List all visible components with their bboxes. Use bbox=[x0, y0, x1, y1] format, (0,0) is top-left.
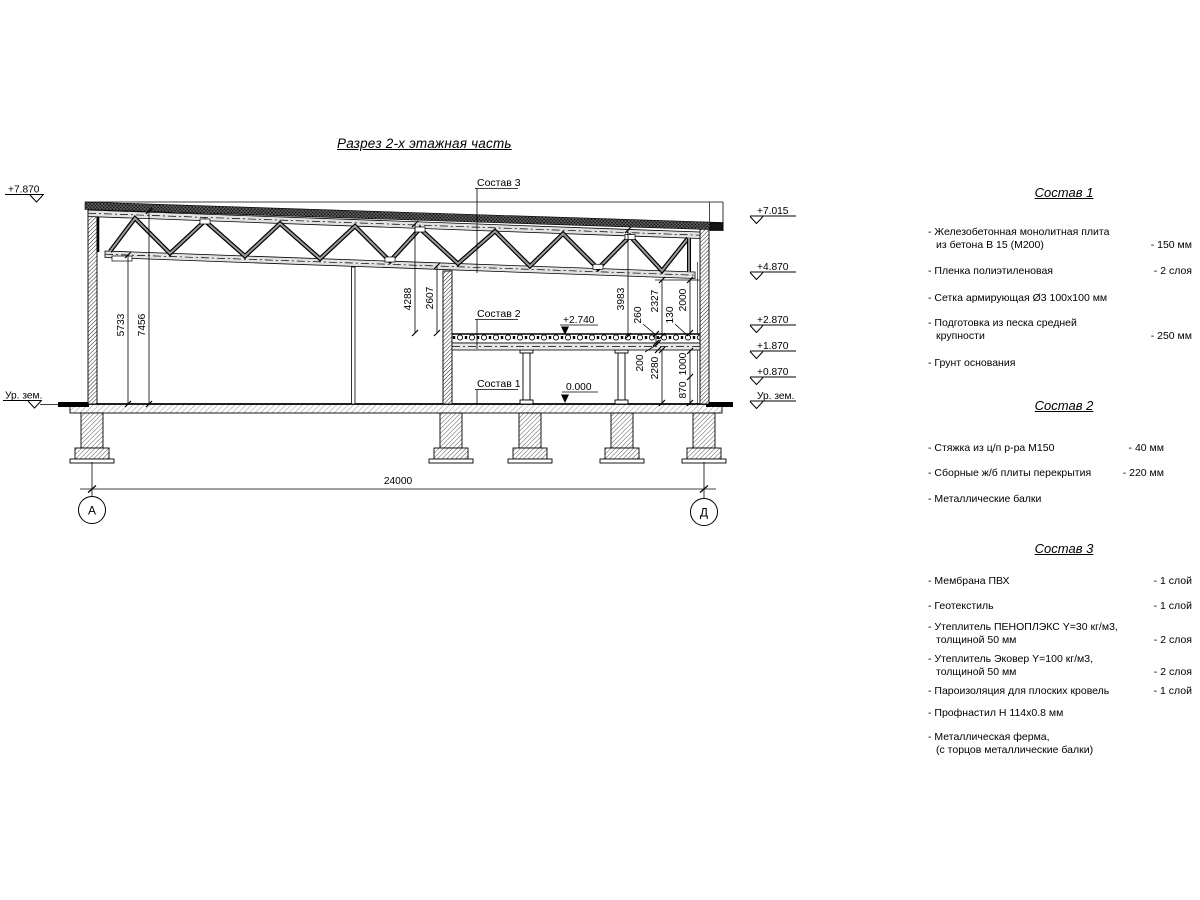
svg-text:+1.870: +1.870 bbox=[757, 341, 789, 352]
foundation bbox=[682, 413, 726, 463]
middle-wall bbox=[443, 271, 452, 404]
svg-text:1000: 1000 bbox=[678, 352, 689, 375]
sostav-3-heading: Состав 3 bbox=[928, 541, 1200, 556]
material-row: - Мембрана ПВХ - 1 слой bbox=[928, 575, 1192, 588]
elevation-mark-4870: +4.870 bbox=[750, 262, 796, 280]
svg-text:+7.015: +7.015 bbox=[757, 206, 789, 217]
material-row: - Железобетонная монолитная плитаиз бето… bbox=[928, 226, 1192, 251]
drawing-title: Разрез 2-х этажная часть bbox=[337, 136, 512, 151]
svg-text:+7.870: +7.870 bbox=[8, 185, 40, 196]
svg-text:Ур. зем.: Ур. зем. bbox=[5, 391, 42, 402]
svg-text:2607: 2607 bbox=[425, 286, 436, 309]
svg-text:200: 200 bbox=[635, 354, 646, 371]
material-row: - Утеплитель Эковер Y=100 кг/м3,толщиной… bbox=[928, 653, 1192, 678]
foundation bbox=[70, 413, 114, 463]
interior-column bbox=[352, 267, 356, 404]
svg-text:Состав 1: Состав 1 bbox=[477, 378, 521, 390]
material-row: - Геотекстиль - 1 слой bbox=[928, 600, 1192, 613]
svg-text:0.000: 0.000 bbox=[566, 382, 592, 393]
svg-text:130: 130 bbox=[665, 306, 676, 323]
material-row: - Пароизоляция для плоских кровель - 1 с… bbox=[928, 685, 1192, 698]
svg-text:24000: 24000 bbox=[384, 476, 413, 487]
left-wall bbox=[88, 203, 97, 404]
svg-text:870: 870 bbox=[678, 381, 689, 398]
elevation-mark-ground-right: Ур. зем. bbox=[750, 391, 796, 409]
material-row: - Металлическая ферма,(с торцов металлич… bbox=[928, 731, 1192, 756]
elevation-mark-ground-left: Ур. зем. bbox=[3, 391, 42, 409]
svg-text:Состав 3: Состав 3 bbox=[477, 177, 521, 189]
material-row: - Утеплитель ПЕНОПЛЭКС Y=30 кг/м3,толщин… bbox=[928, 621, 1192, 646]
level-0000: 0.000 bbox=[561, 382, 598, 403]
svg-text:+2.740: +2.740 bbox=[563, 315, 595, 326]
drawing-sheet: +7.870 Ур. зем. +7.015 +4.870 +2.870 +1.… bbox=[0, 0, 1200, 900]
leader-sostav-1: Состав 1 bbox=[475, 378, 521, 404]
axis-circle-a: А bbox=[79, 497, 106, 524]
material-row: - Сетка армирующая Ø3 100x100 мм bbox=[928, 292, 1192, 305]
svg-text:2000: 2000 bbox=[678, 288, 689, 311]
material-row: - Стяжка из ц/п р-ра М150 - 40 мм bbox=[928, 442, 1164, 455]
axis-circle-d: Д bbox=[691, 499, 718, 526]
svg-text:4288: 4288 bbox=[403, 287, 414, 310]
elevation-mark-1870: +1.870 bbox=[750, 341, 796, 359]
foundations bbox=[70, 413, 726, 463]
svg-text:260: 260 bbox=[633, 306, 644, 323]
svg-text:Состав 2: Состав 2 bbox=[477, 308, 521, 320]
material-row: - Металлические балки bbox=[928, 493, 1164, 506]
svg-text:Д: Д bbox=[700, 506, 708, 520]
svg-text:2327: 2327 bbox=[650, 289, 661, 312]
elevation-mark-2870: +2.870 bbox=[750, 315, 796, 333]
foundation bbox=[600, 413, 644, 463]
svg-text:+0.870: +0.870 bbox=[757, 367, 789, 378]
svg-text:+4.870: +4.870 bbox=[757, 262, 789, 273]
material-row: - Пленка полиэтиленовая - 2 слоя bbox=[928, 265, 1192, 278]
svg-text:7456: 7456 bbox=[137, 313, 148, 336]
ground-slab bbox=[40, 402, 733, 413]
foundation bbox=[429, 413, 473, 463]
right-wall bbox=[700, 229, 709, 404]
elevation-mark-7015: +7.015 bbox=[750, 206, 796, 224]
roof bbox=[85, 202, 723, 239]
floor-columns bbox=[520, 350, 628, 404]
sostav-2-heading: Состав 2 bbox=[928, 398, 1200, 413]
foundation bbox=[508, 413, 552, 463]
svg-text:+2.870: +2.870 bbox=[757, 315, 789, 326]
svg-text:5733: 5733 bbox=[116, 313, 127, 336]
material-row: - Подготовка из песка среднейкрупности -… bbox=[928, 317, 1192, 342]
dimension-lines bbox=[128, 211, 700, 404]
svg-text:3983: 3983 bbox=[616, 287, 627, 310]
material-row: - Профнастил Н 114x0.8 мм bbox=[928, 707, 1192, 720]
material-row: - Грунт основания bbox=[928, 357, 1192, 370]
level-2740: +2.740 bbox=[560, 315, 598, 335]
svg-text:Ур. зем.: Ур. зем. bbox=[757, 391, 794, 402]
elevation-mark-7870: +7.870 bbox=[5, 185, 44, 203]
material-row: - Сборные ж/б плиты перекрытия - 220 мм bbox=[928, 467, 1164, 480]
svg-text:2280: 2280 bbox=[650, 356, 661, 379]
svg-text:А: А bbox=[88, 504, 96, 518]
span-dimension: 24000 bbox=[80, 462, 716, 498]
ground-mark-right bbox=[706, 402, 733, 407]
floor-slab bbox=[452, 334, 700, 350]
elevation-mark-0870: +0.870 bbox=[750, 367, 796, 385]
sostav-1-heading: Состав 1 bbox=[928, 185, 1200, 200]
